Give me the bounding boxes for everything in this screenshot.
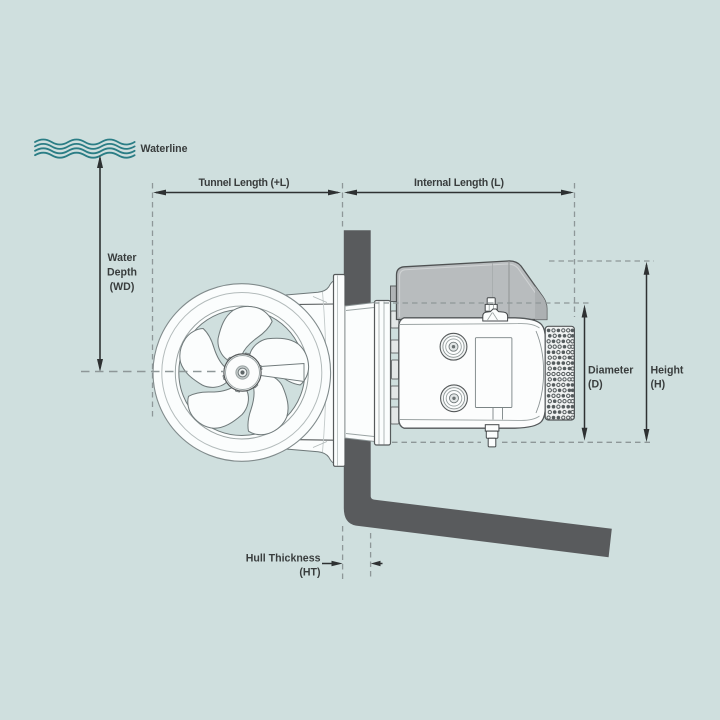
svg-text:Water: Water [107,252,136,264]
svg-text:(HT): (HT) [299,567,320,579]
svg-text:(WD): (WD) [110,281,135,293]
svg-text:Diameter: Diameter [588,365,633,377]
svg-text:Hull Thickness: Hull Thickness [246,553,321,565]
svg-text:(H): (H) [651,379,666,391]
svg-text:Waterline: Waterline [141,143,188,155]
svg-text:Height: Height [651,365,684,377]
svg-text:Internal Length (L): Internal Length (L) [414,177,504,189]
svg-text:(D): (D) [588,379,603,391]
svg-text:Tunnel Length (+L): Tunnel Length (+L) [199,177,290,189]
svg-text:Depth: Depth [107,267,137,279]
